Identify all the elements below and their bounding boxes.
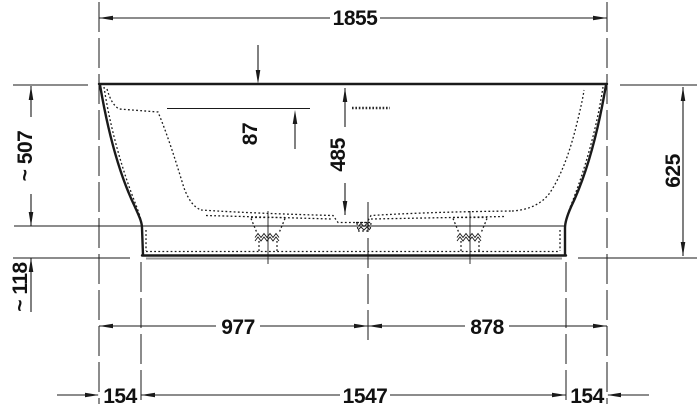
dimension-left-rim-to-drain: 977 [99,316,368,339]
dimension-overall-height: 625 [662,87,685,256]
dimension-label-left-rim-to-drain: 977 [221,316,255,339]
dimension-base-height: ~ 118 [9,258,33,312]
inner-floor-thickness [206,216,505,220]
bathtub-technical-drawing: 1855 ~ 507 ~ 118 87 485 625 977 [0,0,700,416]
dimension-rim-to-inner-ledge: 87 [239,45,297,149]
drawing-canvas: 1855 ~ 507 ~ 118 87 485 625 977 [0,0,700,416]
base-inner-bottom [146,230,560,252]
foot-left-hatch [255,234,279,242]
drain-fitting [356,223,372,232]
dim-arrow-87-top [256,70,261,84]
dimension-label-overall-width: 1855 [333,7,379,30]
dimension-label-drain-to-right-rim: 878 [470,316,504,339]
dimension-left-base-inset: 154 [57,385,138,408]
dimension-rim-to-base-top: ~ 507 [14,86,37,226]
dimension-label-right-base-inset: 154 [570,385,604,408]
dimension-label-rim-to-inner-ledge: 87 [239,123,262,145]
dim-arrow-154-right [607,393,621,398]
inner-wall-left [104,87,142,228]
bathtub-outline [14,84,607,259]
reference-lines [13,2,697,404]
dimension-label-base-length: 1547 [343,385,388,408]
inner-bowl-slope-left [107,89,201,210]
bathtub-hidden-lines [104,87,603,252]
dimension-label-overall-height: 625 [662,153,685,187]
dimension-label-base-height: ~ 118 [9,261,32,311]
dimension-overall-width: 1855 [99,7,607,30]
dimension-inner-depth: 485 [327,88,350,215]
dimension-right-base-inset: 154 [570,385,649,408]
dim-arrow-154-left [85,393,99,398]
dim-arrow-87-bottom [293,110,298,124]
dimension-label-left-base-inset: 154 [103,385,137,408]
outer-wall-right [565,85,606,255]
dimension-base-length: 1547 [141,385,566,408]
inner-bowl-slope-right [512,90,584,211]
dimension-label-inner-depth: 485 [327,137,350,171]
inner-wall-right [565,87,603,228]
dimension-label-rim-to-base-top: ~ 507 [14,131,37,182]
foot-right-hatch [457,234,481,242]
dimension-drain-to-right-rim: 878 [368,316,607,339]
